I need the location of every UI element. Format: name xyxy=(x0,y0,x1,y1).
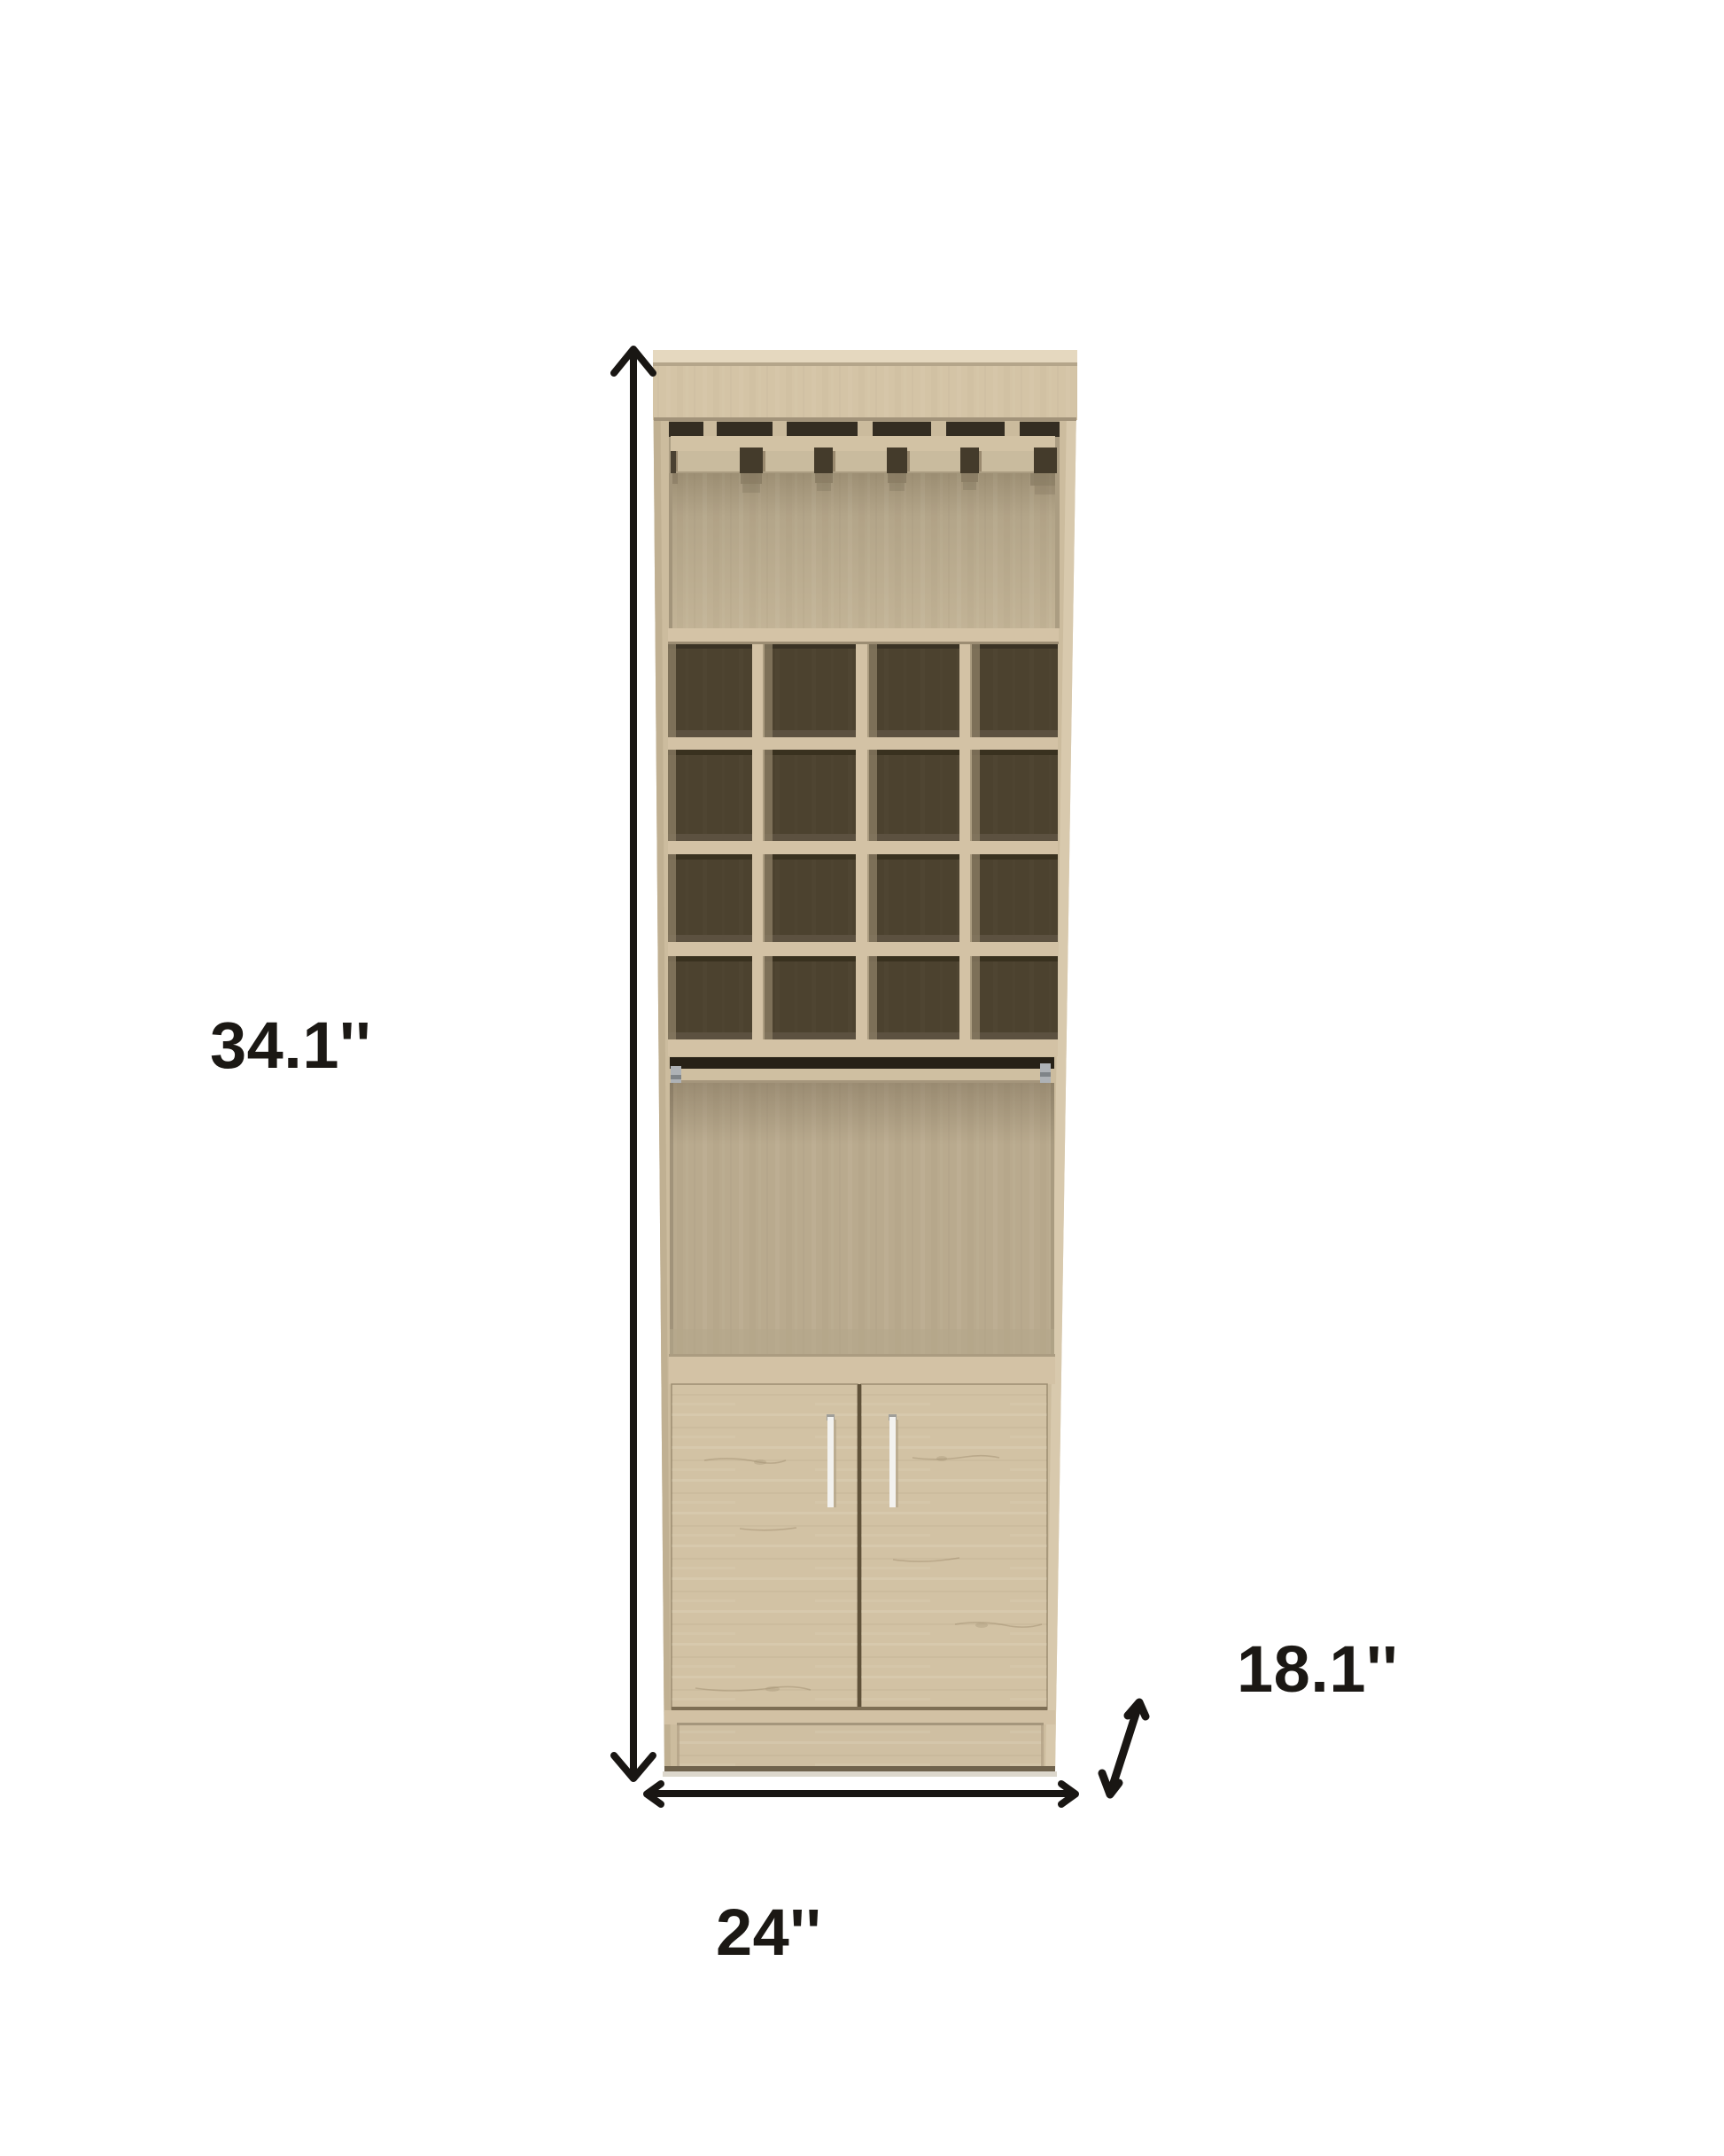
svg-text:24'': 24'' xyxy=(716,1895,822,1969)
svg-text:18.1'': 18.1'' xyxy=(1237,1632,1398,1706)
svg-text:34.1'': 34.1'' xyxy=(210,1008,371,1082)
